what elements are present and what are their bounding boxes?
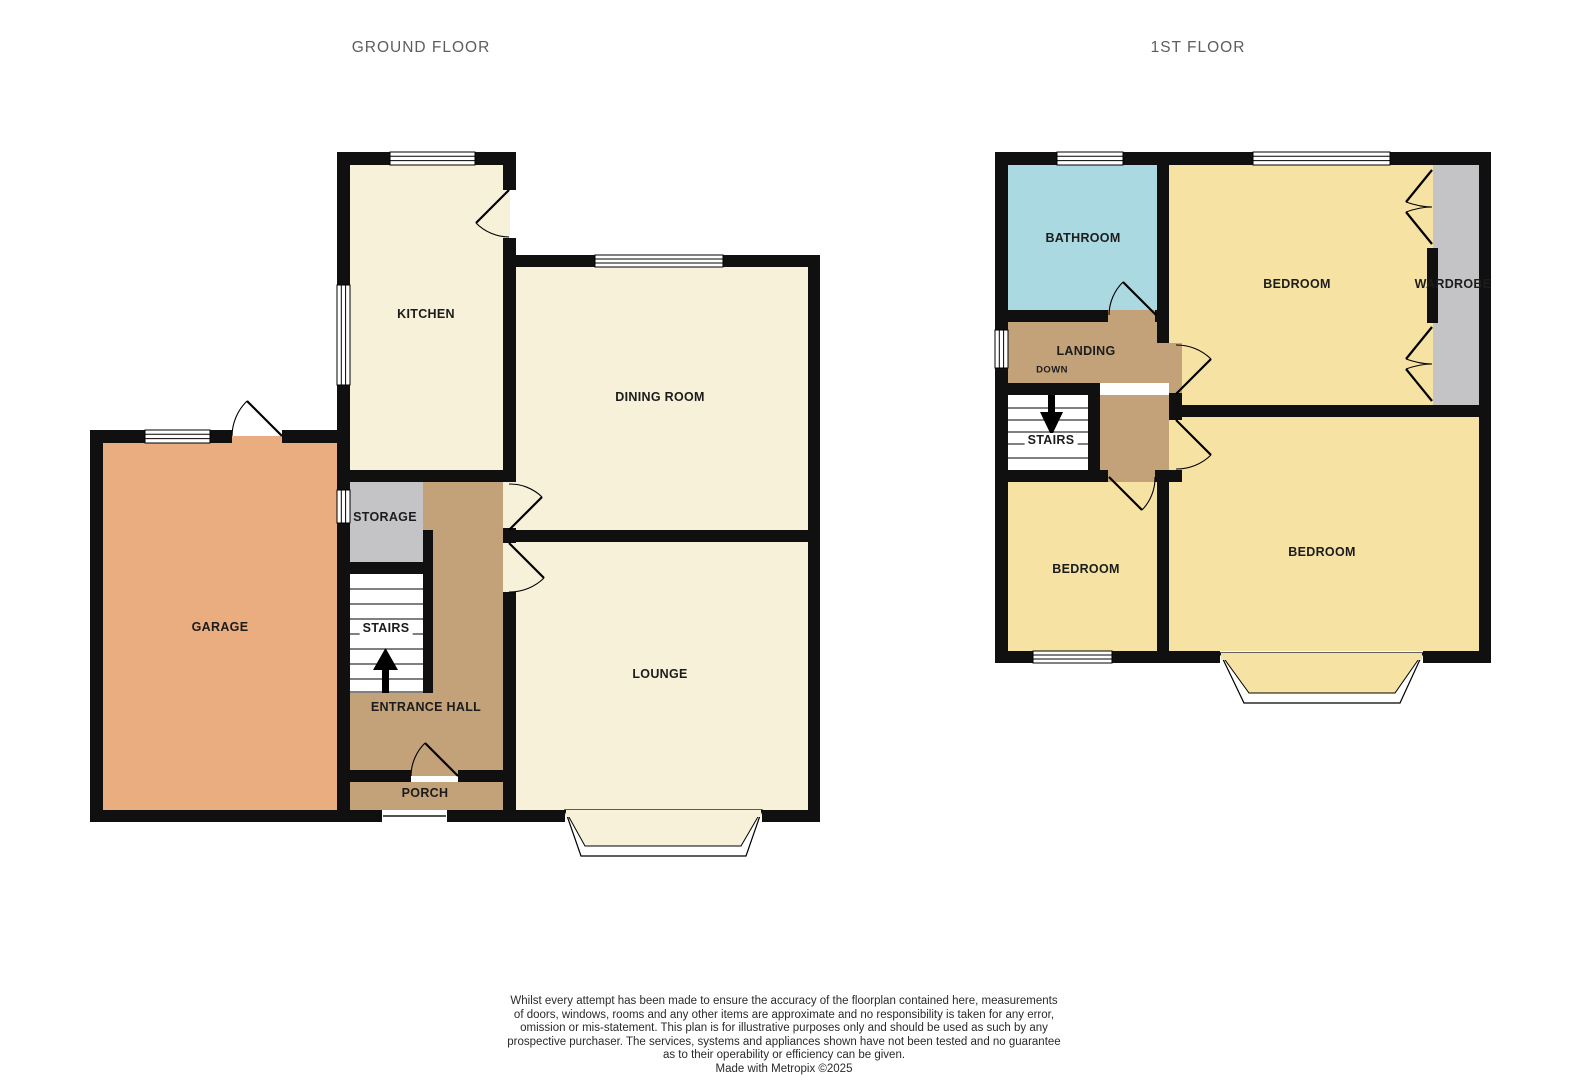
storage-label: STORAGE: [353, 510, 417, 524]
landing-window: [995, 330, 1008, 368]
kitchen-top-window: [390, 152, 475, 165]
credit-line: Made with Metropix ©2025: [424, 1063, 1144, 1077]
ground-stairs-label: STAIRS: [360, 621, 413, 635]
garage-window: [145, 430, 210, 443]
garage-label: GARAGE: [192, 620, 249, 634]
storage-window: [337, 490, 350, 523]
down-label: DOWN: [1036, 365, 1068, 376]
disclaimer-text: Whilst every attempt has been made to en…: [424, 995, 1144, 1077]
landing-label: LANDING: [1056, 344, 1115, 358]
dining-room-window: [595, 255, 723, 267]
garage-door: [232, 401, 282, 436]
disclaimer-line: omission or mis-statement. This plan is …: [424, 1022, 1144, 1036]
first-floor-stairs: [1008, 390, 1088, 470]
bedroom-front-window: [1253, 152, 1390, 165]
dining-room-label: DINING ROOM: [615, 390, 704, 404]
bedroom-front-label: BEDROOM: [1263, 277, 1330, 291]
disclaimer-line: of doors, windows, rooms and any other i…: [424, 1009, 1144, 1023]
kitchen-label: KITCHEN: [397, 307, 455, 321]
bedroom-side-label: BEDROOM: [1052, 562, 1119, 576]
disclaimer-line: Whilst every attempt has been made to en…: [424, 995, 1144, 1009]
floorplan-drawing: [0, 0, 1581, 1080]
porch-label: PORCH: [402, 786, 449, 800]
bedroom-rear-fill: [1169, 417, 1479, 651]
bedroom-side-window: [1033, 651, 1112, 663]
lounge-bay-window: [565, 810, 762, 856]
entrance-hall-fill: [433, 478, 503, 776]
disclaimer-line: prospective purchaser. The services, sys…: [424, 1036, 1144, 1050]
kitchen-side-window: [337, 285, 350, 385]
bathroom-window: [1057, 152, 1123, 165]
bathroom-label: BATHROOM: [1045, 231, 1120, 245]
lounge-label: LOUNGE: [632, 667, 687, 681]
bedroom-rear-label: BEDROOM: [1288, 545, 1355, 559]
bedroom-bay-window: [1220, 653, 1423, 703]
entrance-hall-label: ENTRANCE HALL: [371, 700, 481, 714]
disclaimer-line: as to their operability or efficiency ca…: [424, 1049, 1144, 1063]
wardrobe-label: WARDROBE: [1415, 277, 1492, 291]
floorplan-canvas: GROUND FLOOR 1ST FLOOR: [0, 0, 1581, 1080]
first-stairs-label: STAIRS: [1025, 433, 1078, 447]
